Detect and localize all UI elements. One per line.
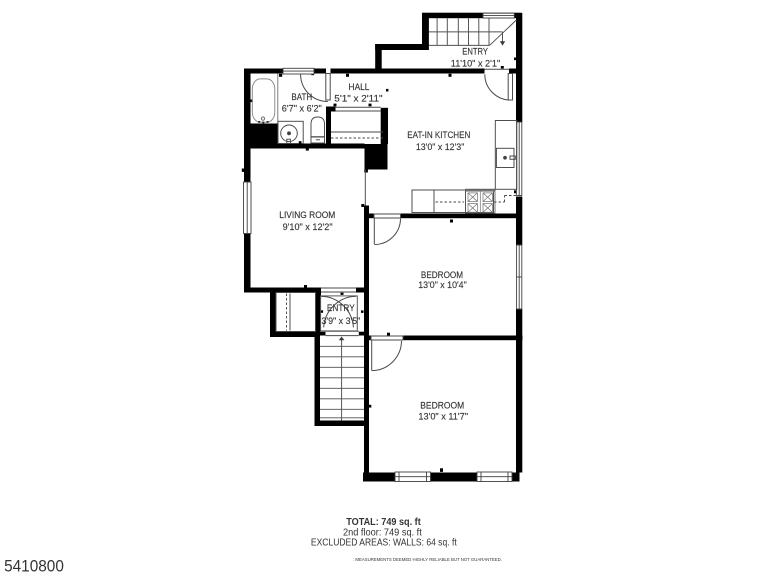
svg-text:3'9" x 3'5": 3'9" x 3'5"	[321, 316, 360, 327]
svg-text:9'10" x 12'2": 9'10" x 12'2"	[283, 222, 333, 233]
svg-text:: MEASUREMENTS DEEMED HIGHLY R: : MEASUREMENTS DEEMED HIGHLY RELIABLE BU…	[353, 557, 502, 562]
svg-text:5'1" x 2'11": 5'1" x 2'11"	[334, 94, 382, 105]
svg-text:6'7" x 6'2": 6'7" x 6'2"	[282, 104, 322, 115]
svg-text:EXCLUDED AREAS: WALLS: 64 sq.: EXCLUDED AREAS: WALLS: 64 sq. ft	[311, 538, 457, 549]
svg-text:13'0" x 11'7": 13'0" x 11'7"	[418, 412, 468, 423]
svg-text:5410800: 5410800	[4, 556, 64, 575]
svg-text:LIVING ROOM: LIVING ROOM	[279, 210, 335, 221]
svg-text:ENTRY: ENTRY	[462, 46, 488, 57]
svg-text:BATH: BATH	[291, 92, 312, 103]
svg-text:TOTAL: 749 sq. ft: TOTAL: 749 sq. ft	[346, 517, 421, 528]
svg-text:BEDROOM: BEDROOM	[420, 400, 464, 411]
svg-text:HALL: HALL	[349, 82, 370, 93]
svg-text:13'0" x 10'4": 13'0" x 10'4"	[418, 280, 467, 291]
svg-text:13'0" x 12'3": 13'0" x 12'3"	[416, 142, 465, 153]
svg-text:11'10" x 2'1": 11'10" x 2'1"	[451, 58, 500, 69]
svg-text:EAT-IN KITCHEN: EAT-IN KITCHEN	[407, 130, 470, 141]
svg-text:ENTRY: ENTRY	[327, 303, 355, 314]
